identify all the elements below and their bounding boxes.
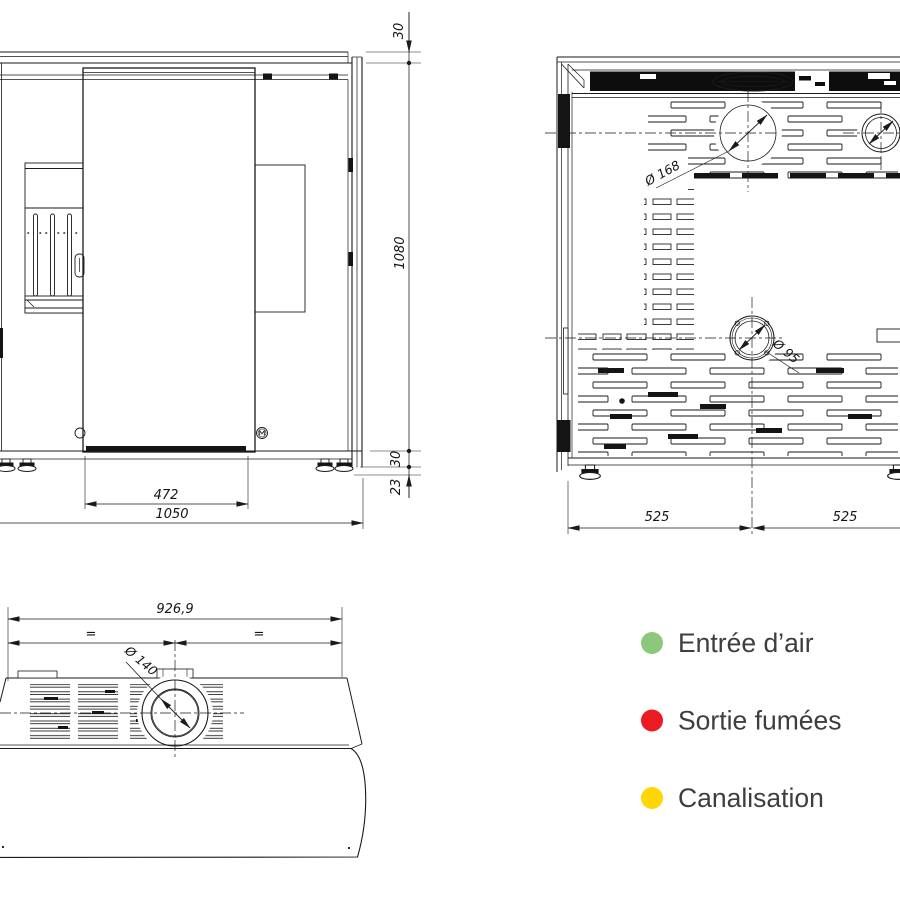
rear-view-dimensions: 525 525 (568, 481, 900, 534)
top-front-section (0, 744, 366, 858)
legend-duct-label: Canalisation (678, 783, 824, 813)
dim-equal-left-label: = (86, 627, 97, 642)
m-badge-icon (257, 428, 268, 439)
duct-legend-dot-icon (641, 787, 663, 809)
dim-top-cap-label: 30 (392, 23, 407, 40)
front-view: 30 1080 30 23 472 1050 (0, 12, 421, 529)
air-inlet-legend-dot-icon (641, 632, 663, 654)
top-view: 926,9 = = (0, 602, 366, 858)
legend: Entrée d’air Sortie fumées Canalisation (641, 628, 842, 813)
dim-total-width-label: 1050 (155, 507, 188, 522)
rear-feet (580, 465, 900, 479)
dim-base-label: 30 (389, 451, 404, 468)
front-firebox-window (25, 163, 84, 313)
dim-equal-right-label: = (254, 627, 265, 642)
dim-width-label: 926,9 (156, 602, 193, 617)
legend-air-inlet-label: Entrée d’air (678, 628, 814, 658)
dim-door-width-label: 472 (154, 488, 179, 503)
front-side-panel (255, 165, 305, 312)
legend-item-air-inlet: Entrée d’air (641, 628, 814, 658)
technical-drawing-canvas: 30 1080 30 23 472 1050 (0, 0, 900, 900)
dim-left-label: 525 (645, 510, 670, 525)
technical-drawing-page: 30 1080 30 23 472 1050 (0, 0, 900, 900)
front-sliding-door (83, 68, 255, 452)
dim-top-smoke-diameter-label: Ø 140 (121, 642, 160, 678)
rear-top-band (572, 70, 900, 98)
front-feet (0, 459, 353, 472)
smoke-outlet-legend-dot-icon (641, 710, 663, 732)
legend-item-smoke-outlet: Sortie fumées (641, 706, 842, 736)
legend-item-duct: Canalisation (641, 783, 824, 813)
dim-right-label: 525 (833, 510, 858, 525)
dim-height-label: 1080 (393, 236, 408, 269)
dim-feet-label: 23 (389, 479, 404, 496)
legend-smoke-outlet-label: Sortie fumées (678, 706, 842, 736)
rear-view: Ø 168 Ø 95 525 525 (545, 57, 900, 535)
